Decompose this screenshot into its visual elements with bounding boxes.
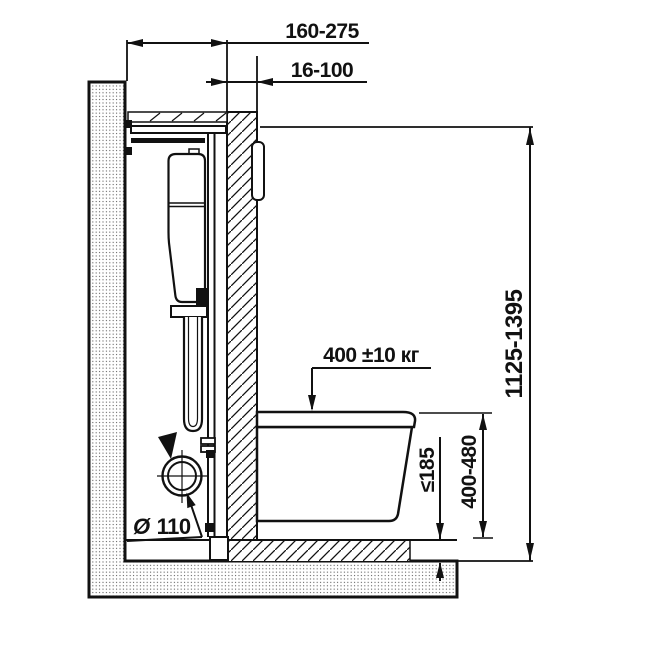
dim-frame-height-label: 1125-1395 — [501, 289, 528, 398]
bowl-seat-top — [257, 412, 415, 427]
frame-cross-bar — [131, 138, 205, 143]
dim-bowl-height-label: 400-480 — [458, 435, 481, 509]
bowl-fixing-bolt — [206, 450, 215, 458]
flush-plate — [252, 142, 264, 200]
wall-hung-wc-bowl — [257, 412, 415, 521]
wall-anchor-bolt — [125, 120, 132, 128]
flush-valve — [196, 288, 209, 305]
pipe-clamp — [201, 438, 215, 444]
screed-hatch — [228, 540, 410, 561]
wall-anchor-bolt — [125, 147, 132, 155]
diameter-value: 110 — [157, 514, 191, 539]
cistern-body — [169, 154, 206, 302]
foot-anchor — [205, 523, 214, 532]
dim-drain-diameter-label: Ø110 — [133, 514, 191, 539]
installation-drawing: 160-275 16-100 1125-1395 400 ±10 кг 400-… — [0, 0, 650, 650]
dim-facing-thickness-label: 16-100 — [291, 59, 353, 82]
frame-top-rail — [131, 126, 226, 133]
flush-pipe-collar — [171, 306, 207, 317]
dim-load-capacity-label: 400 ±10 кг — [323, 344, 420, 367]
bowl-body — [257, 427, 412, 521]
top-wall-bracket — [128, 112, 227, 122]
diameter-symbol: Ø — [133, 514, 151, 539]
concealed-cistern — [169, 149, 210, 305]
flush-pipe-body — [184, 317, 202, 431]
technical-section-drawing: 160-275 16-100 1125-1395 400 ±10 кг 400-… — [0, 0, 650, 650]
dim-frame-depth-label: 160-275 — [285, 20, 359, 43]
dim-floor-buildup-label: ≤185 — [416, 447, 439, 492]
foot-support-block — [210, 537, 228, 560]
